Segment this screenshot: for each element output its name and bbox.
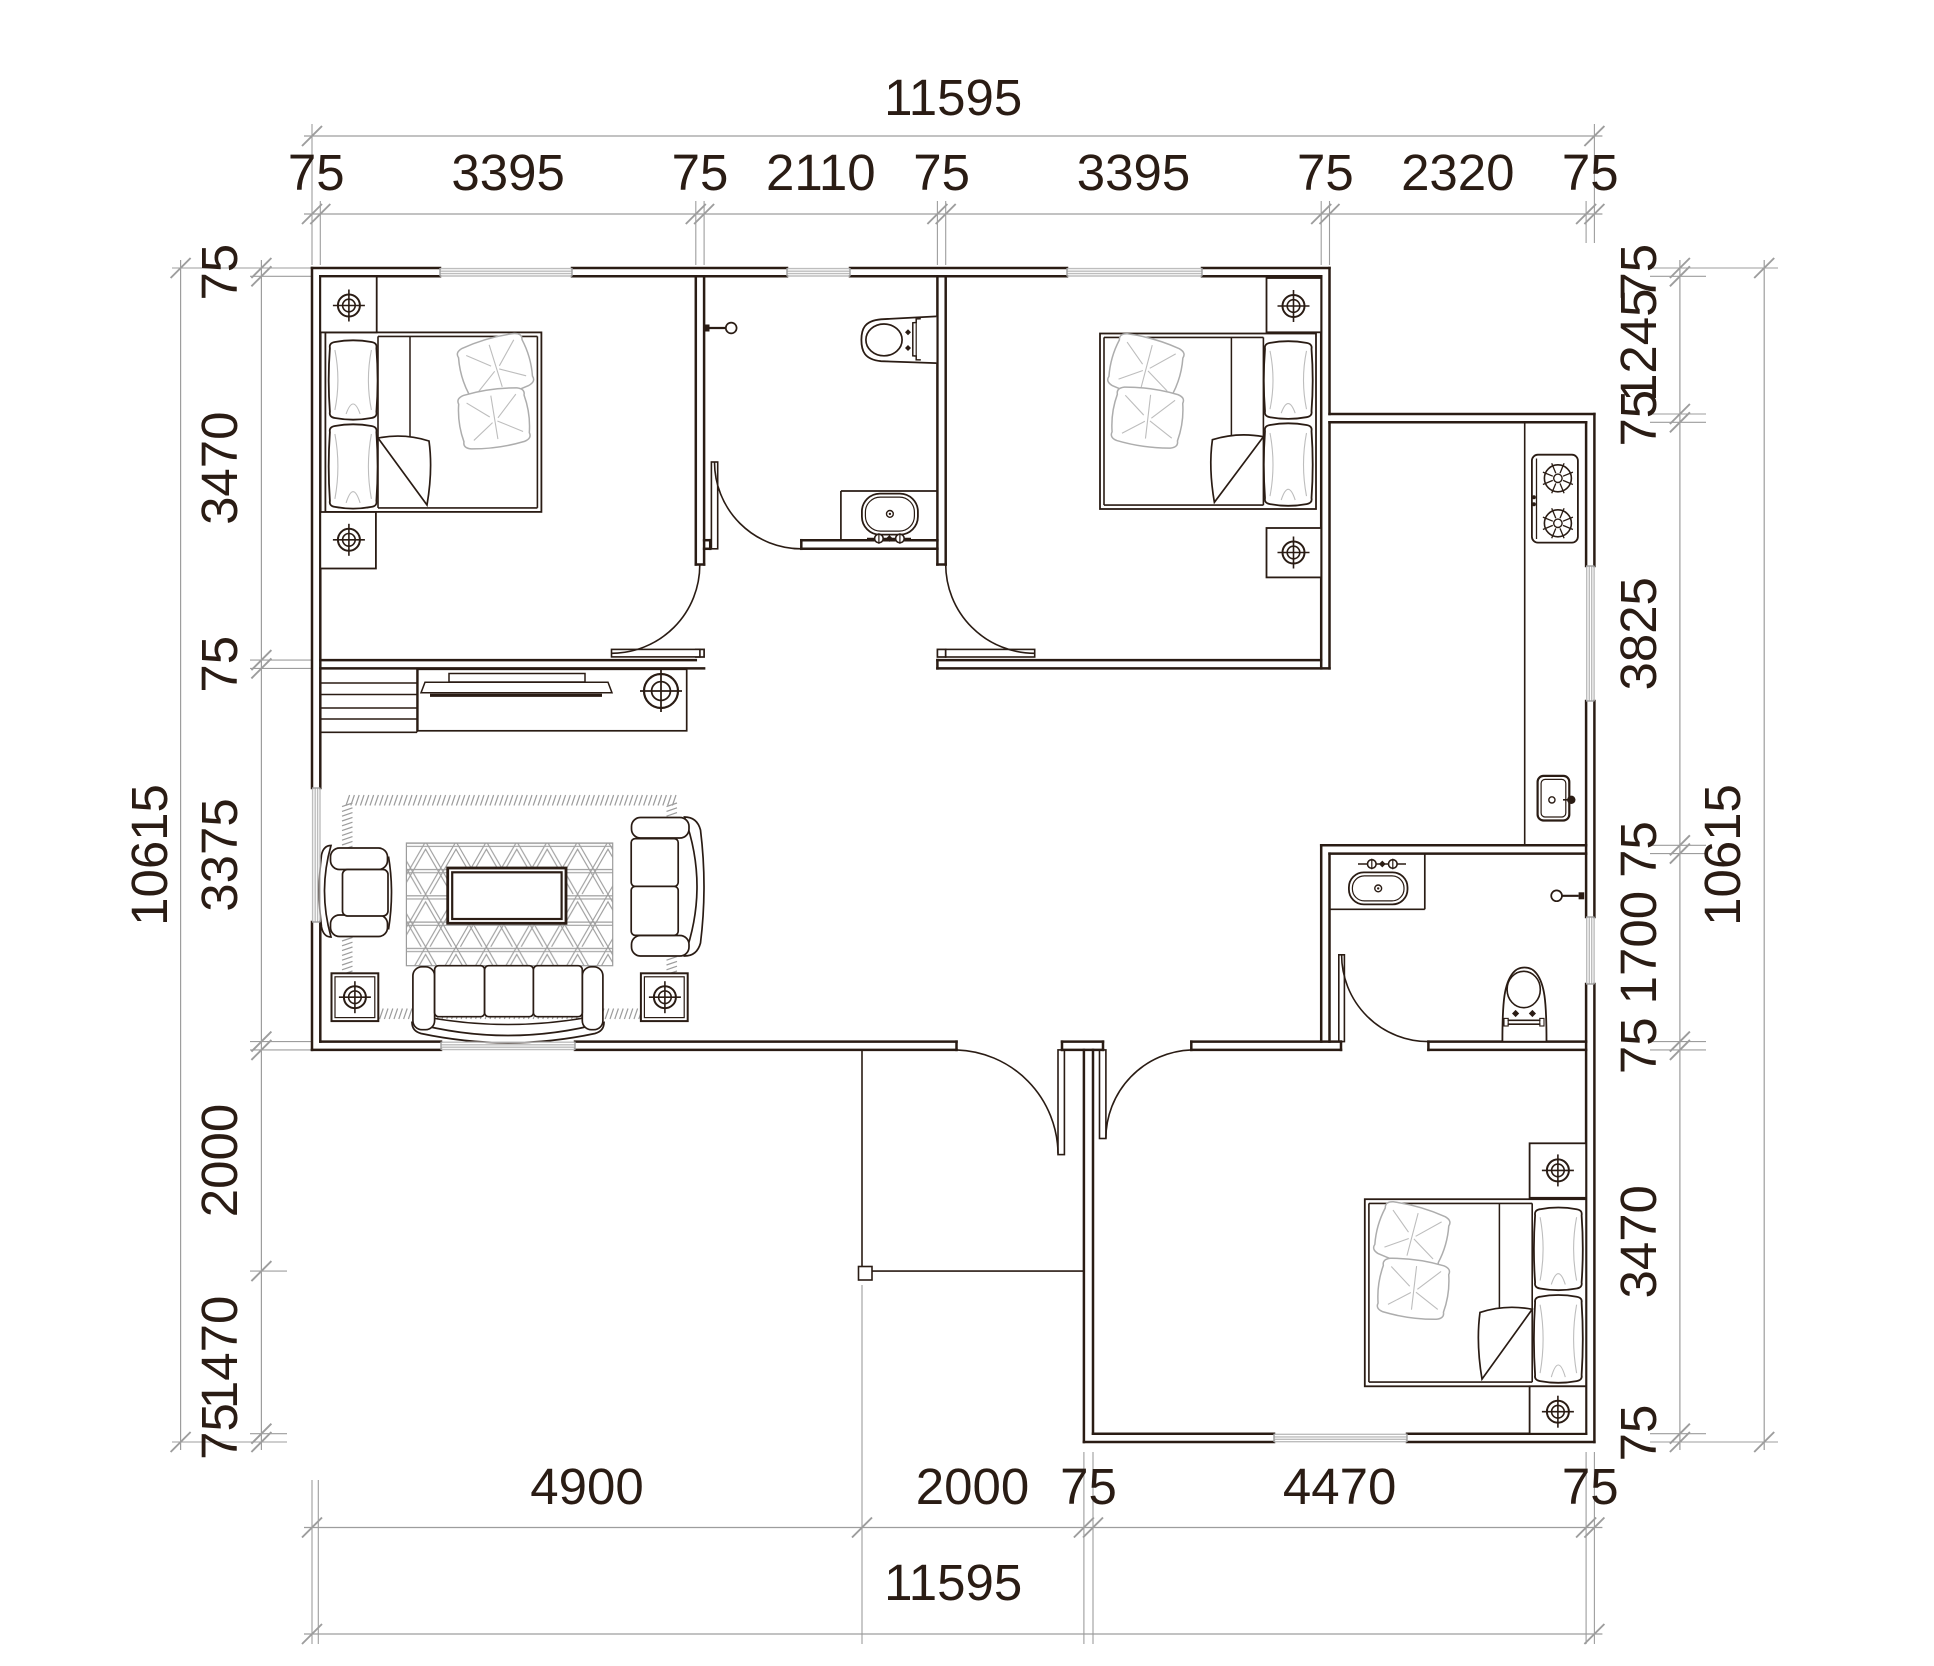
svg-text:75: 75 <box>672 144 729 201</box>
svg-text:1700: 1700 <box>1610 891 1667 1004</box>
svg-text:11595: 11595 <box>884 1554 1022 1611</box>
svg-text:75: 75 <box>1610 821 1667 878</box>
svg-text:3395: 3395 <box>1077 144 1190 201</box>
svg-text:2320: 2320 <box>1401 144 1514 201</box>
svg-text:3825: 3825 <box>1610 577 1667 690</box>
svg-text:75: 75 <box>191 244 248 301</box>
svg-text:2000: 2000 <box>916 1458 1029 1515</box>
svg-text:75: 75 <box>1610 1017 1667 1074</box>
svg-text:11595: 11595 <box>884 69 1022 126</box>
svg-text:1245: 1245 <box>1610 288 1667 401</box>
svg-text:3395: 3395 <box>451 144 564 201</box>
svg-text:75: 75 <box>913 144 970 201</box>
svg-text:10615: 10615 <box>121 784 178 926</box>
svg-text:75: 75 <box>191 636 248 693</box>
svg-text:1470: 1470 <box>191 1296 248 1409</box>
svg-text:75: 75 <box>1610 1405 1667 1462</box>
svg-text:75: 75 <box>1297 144 1354 201</box>
svg-text:75: 75 <box>288 144 345 201</box>
svg-text:75: 75 <box>1610 390 1667 447</box>
svg-text:3470: 3470 <box>191 411 248 524</box>
svg-text:2000: 2000 <box>191 1104 248 1217</box>
svg-text:4900: 4900 <box>530 1458 643 1515</box>
svg-text:3375: 3375 <box>191 798 248 911</box>
svg-text:3470: 3470 <box>1610 1185 1667 1298</box>
svg-text:75: 75 <box>1562 1458 1619 1515</box>
svg-text:2110: 2110 <box>766 144 876 201</box>
svg-text:75: 75 <box>1562 144 1619 201</box>
svg-text:10615: 10615 <box>1694 784 1751 926</box>
svg-text:4470: 4470 <box>1283 1458 1396 1515</box>
svg-text:75: 75 <box>1060 1458 1117 1515</box>
svg-text:75: 75 <box>191 1403 248 1460</box>
